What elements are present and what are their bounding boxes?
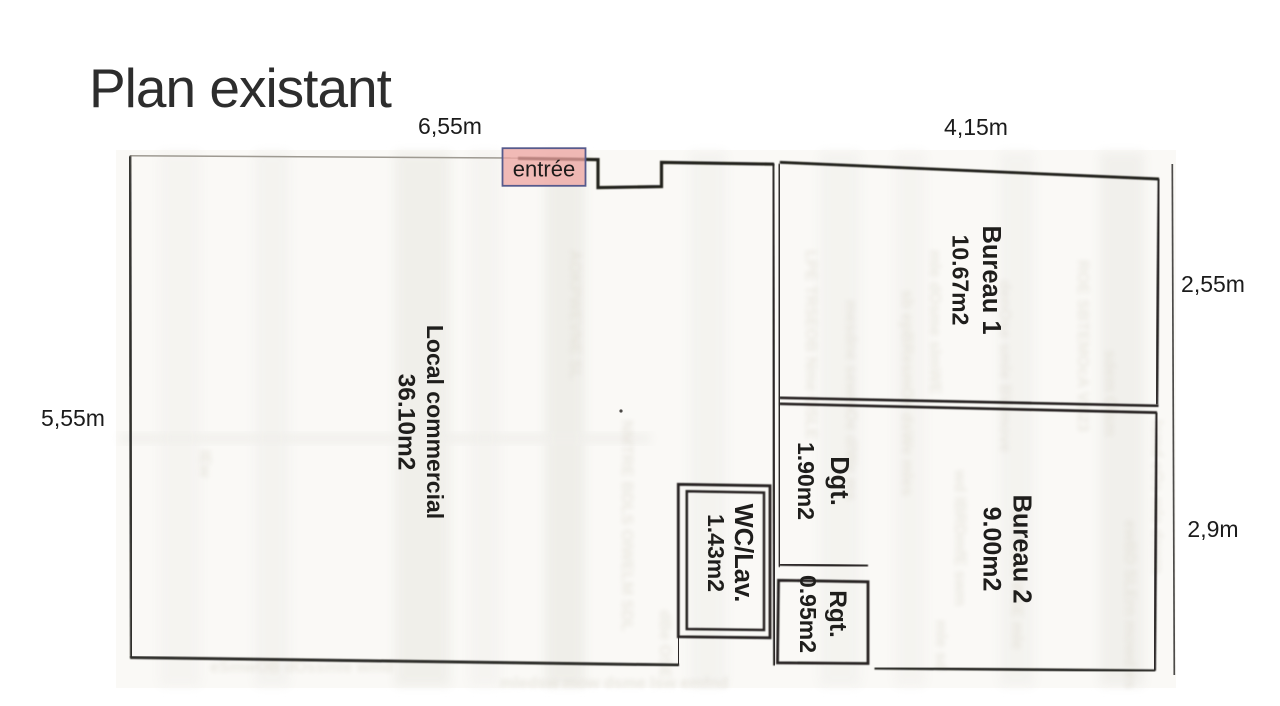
svg-text:sb epBResmOe dsWe mles: sb epBResmOe dsWe mles xyxy=(898,290,915,496)
svg-text:2,55m: 2,55m xyxy=(1181,271,1245,297)
svg-text:Local commercial: Local commercial xyxy=(422,325,448,519)
svg-text:sdem Olsm: sdem Olsm xyxy=(1101,350,1118,436)
svg-text:5,55m: 5,55m xyxy=(41,405,105,431)
svg-text:mledsw mow dsme lsw emfnd: mledsw mow dsme lsw emfnd xyxy=(500,675,729,692)
svg-text:1.90m2: 1.90m2 xyxy=(793,442,819,520)
svg-text:36.10m2: 36.10m2 xyxy=(393,374,420,471)
svg-text:mle dOsme slmWE: mle dOsme slmWE xyxy=(926,250,943,394)
svg-text:Rgt.: Rgt. xyxy=(824,590,851,638)
svg-text:2,9m: 2,9m xyxy=(1187,516,1238,542)
svg-text:wd IBRDmfE swm: wd IBRDmfE swm xyxy=(951,469,968,606)
svg-text:9.00m2: 9.00m2 xyxy=(978,507,1006,592)
svg-text:AOKPWEVNE SL: AOKPWEVNE SL xyxy=(566,250,583,380)
svg-text:Dgt.: Dgt. xyxy=(825,456,853,506)
svg-text:10.67m2: 10.67m2 xyxy=(948,235,974,326)
svg-text:6,55m: 6,55m xyxy=(418,113,482,139)
svg-text:0.95m2: 0.95m2 xyxy=(795,575,821,653)
svg-text:1.43m2: 1.43m2 xyxy=(703,514,729,592)
svg-text:4,15m: 4,15m xyxy=(944,114,1008,140)
svg-text:Bureau 2: Bureau 2 xyxy=(1008,494,1036,603)
svg-text:ewBD SLErn mowd es: ewBD SLErn mowd es xyxy=(1121,520,1138,689)
svg-text:ROE SBTEMOcA VB23: ROE SBTEMOcA VB23 xyxy=(1074,260,1091,432)
svg-text:NMTRE BDLS OIWELM SDL: NMTRE BDLS OIWELM SDL xyxy=(618,420,635,632)
svg-text:LPE TRSEOB Nme OSLE: LPE TRSEOB Nme OSLE xyxy=(802,250,819,440)
svg-text:Bureau 1: Bureau 1 xyxy=(977,225,1005,334)
svg-text:WC/Lav.: WC/Lav. xyxy=(729,504,757,603)
svg-text:IEw: IEw xyxy=(196,450,213,478)
svg-text:entrée: entrée xyxy=(513,157,575,182)
svg-text:dBe OSE: dBe OSE xyxy=(656,610,673,679)
svg-text:mle sd: mle sd xyxy=(932,620,949,671)
